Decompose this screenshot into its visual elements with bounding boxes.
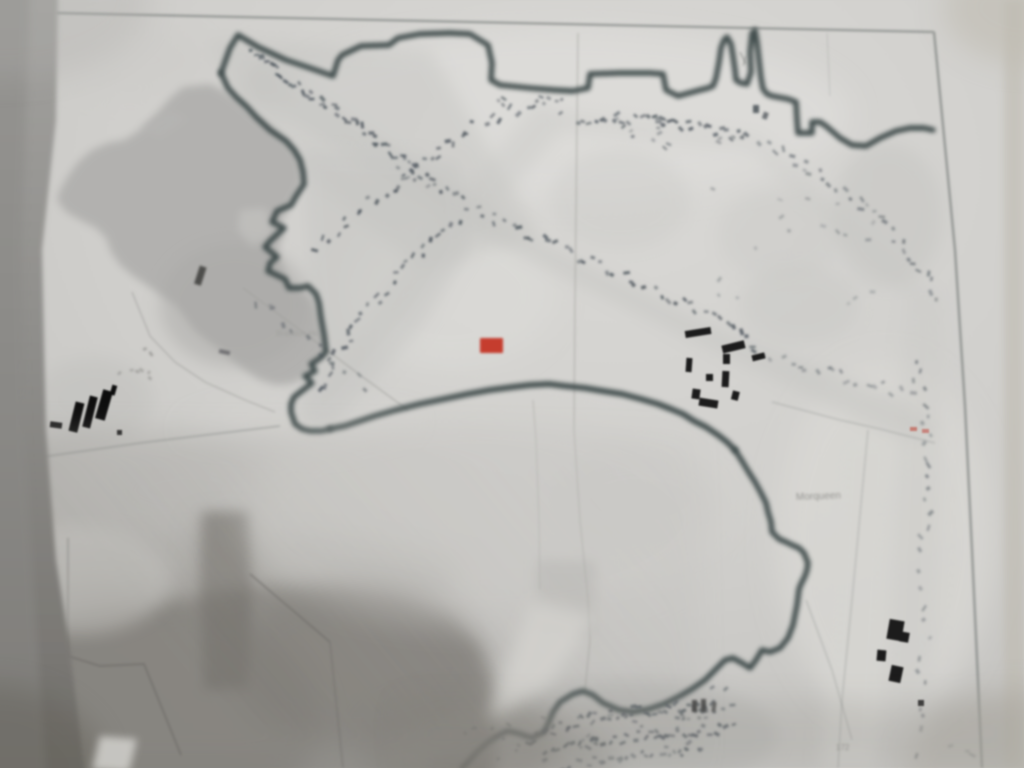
svg-text:Morqueen: Morqueen: [796, 490, 841, 503]
svg-text:Brandon Ho: Brandon Ho: [276, 329, 319, 338]
